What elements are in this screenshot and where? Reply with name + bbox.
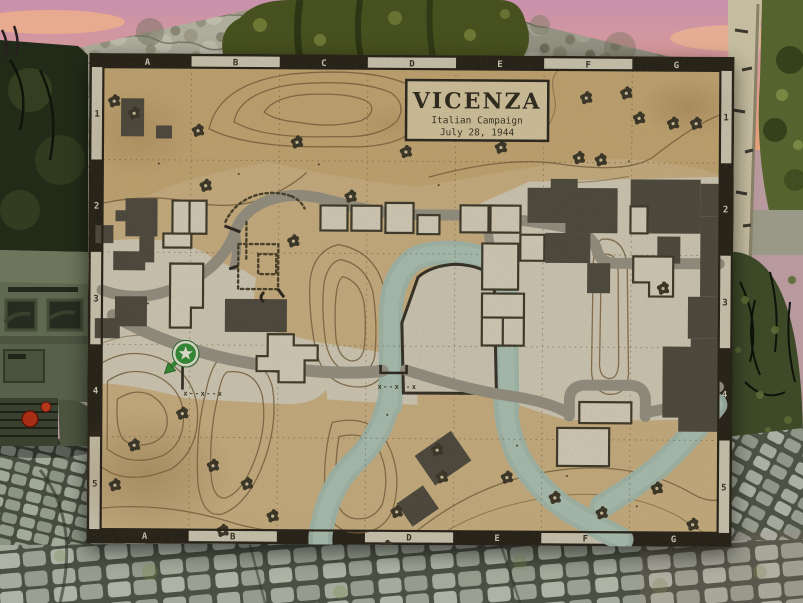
- military-vehicle: [0, 250, 98, 458]
- tail-light: [41, 402, 51, 412]
- tail-light: [22, 411, 38, 427]
- vicenza-overview-map: A B C D E F G A B C D E F G 1 2 3 4 5 1: [87, 53, 735, 547]
- map-panel: A B C D E F G A B C D E F G 1 2 3 4 5 1: [87, 53, 735, 547]
- game-screenshot: A B C D E F G A B C D E F G 1 2 3 4 5 1: [0, 0, 803, 603]
- birch-tree: [728, 0, 803, 272]
- left-shadow-trees: [0, 26, 88, 260]
- paper-grain: [87, 53, 735, 547]
